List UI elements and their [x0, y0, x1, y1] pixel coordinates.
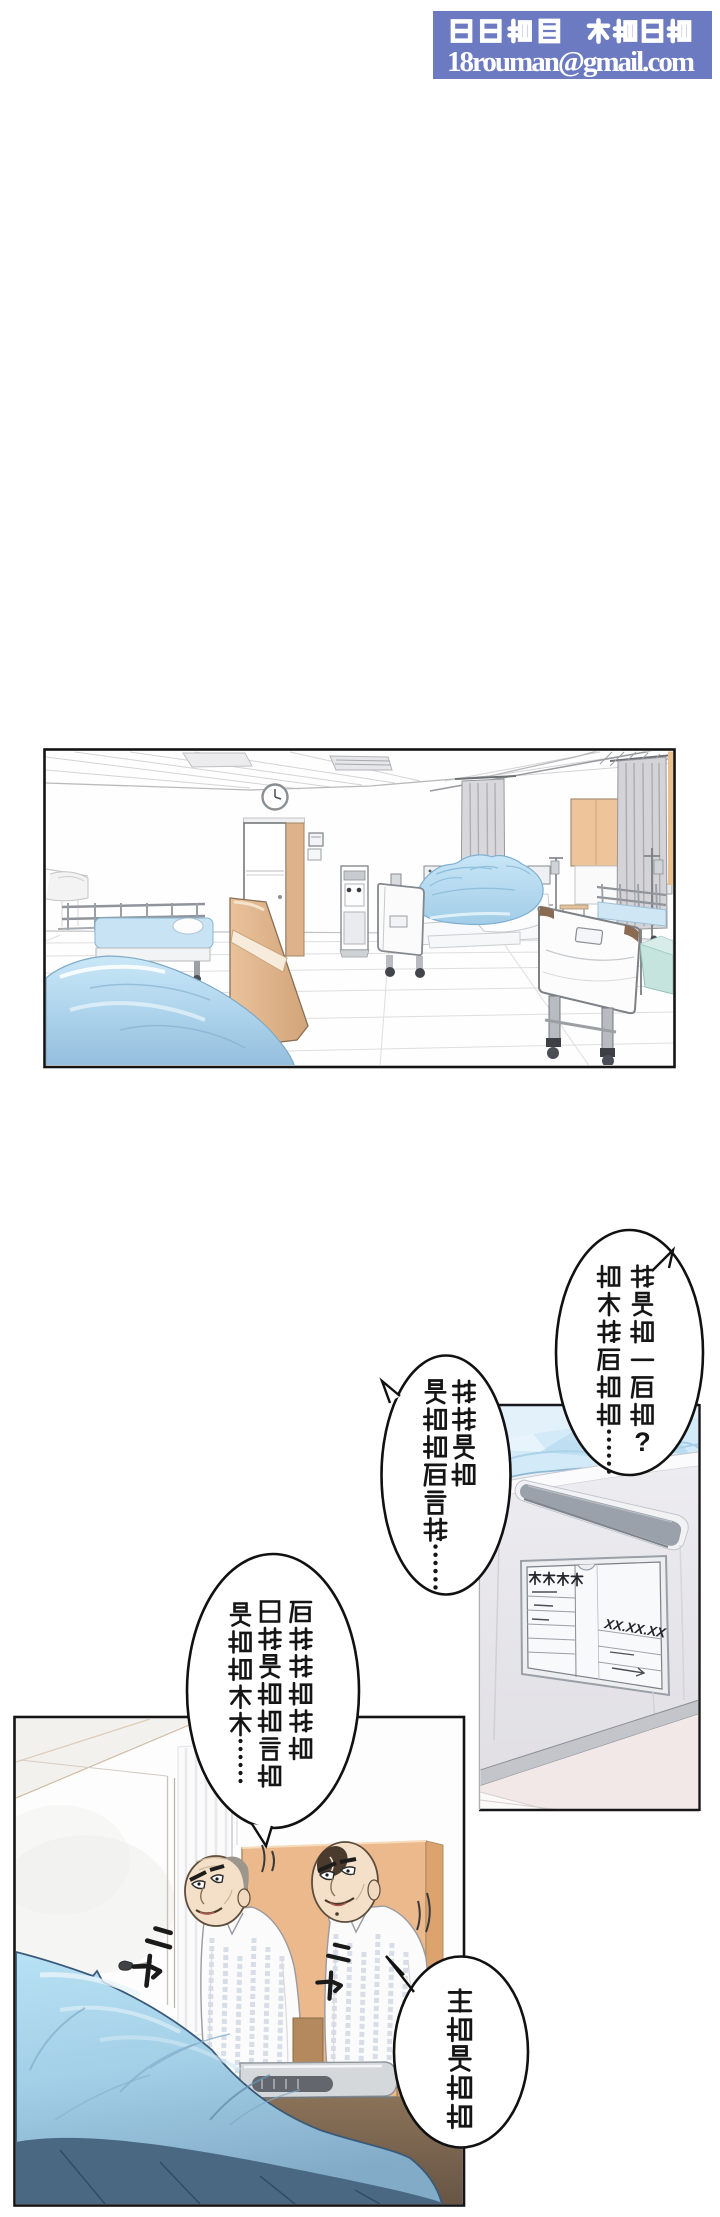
svg-text:?: ? — [634, 1427, 651, 1457]
svg-text:18rouman@gmail.com: 18rouman@gmail.com — [447, 46, 695, 78]
